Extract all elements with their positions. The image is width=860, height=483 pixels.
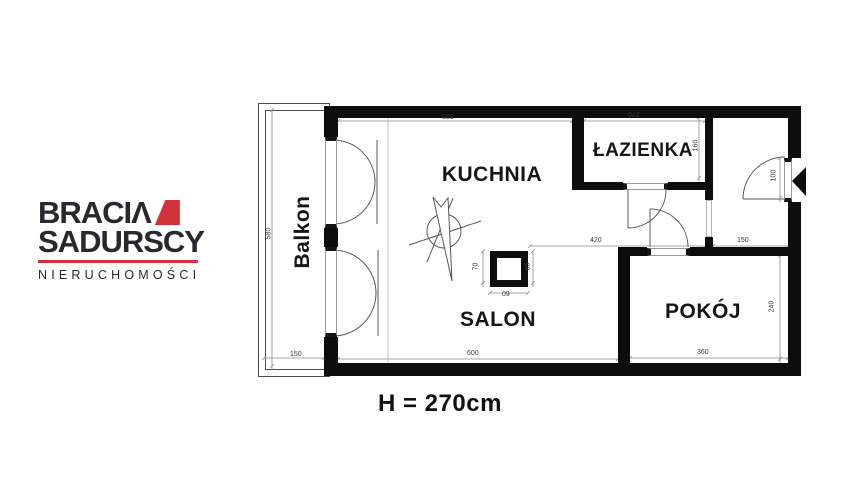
room-label-pokoj: POKÓJ [648,300,758,324]
room-label-kuchnia: KUCHNIA [432,163,552,187]
wall-room-top-right [690,247,800,256]
ceiling-height-note: H = 270cm [378,390,502,418]
wall-left-mullion [324,228,338,247]
room-label-balkon: Balkon [291,182,317,282]
balcony-door-1 [325,137,337,228]
dim-lazienka-depth: 160 [692,140,699,152]
wall-bathroom-left [572,106,584,190]
room-door [647,248,690,256]
wall-top [324,106,801,118]
wall-hall-right-upper [705,106,713,200]
wall-bottom [324,363,801,376]
dim-entry-opening: 100 [770,170,777,182]
room-label-salon: SALON [438,308,558,332]
dim-pokoj-depth: 240 [768,301,775,313]
dim-balkon-width: 150 [290,351,302,358]
hall-passage-opening [706,200,712,237]
ventilation-shaft [490,251,528,287]
dim-lazienka-width: 270 [628,110,640,117]
dim-kuchnia-width: 525 [442,112,454,119]
wall-right-lower [788,202,801,376]
wall-room-left [618,247,630,363]
room-label-lazienka: ŁAZIENKA [588,140,698,162]
dim-salon-width: 600 [467,350,479,357]
dim-shaft-right: 65 [524,263,531,271]
wall-left-bottom [324,337,338,376]
bathroom-door [623,183,668,190]
floorplan-page: BRACIΛ SADURSCY NIERUCHOMOŚCI [0,0,860,483]
wall-bathroom-bottom-left [572,182,623,190]
dim-pokoj-width: 360 [697,349,709,356]
entrance-door [784,158,792,202]
dim-balkon-length: 580 [265,228,272,240]
dim-shaft-left: 70 [472,263,479,271]
balcony-door-2 [325,247,337,337]
wall-right-upper [788,106,801,158]
north-arrow-icon [409,197,481,281]
dim-hall-length: 420 [590,237,602,244]
wall-left-top [324,106,338,137]
dim-shaft-bottom: 60 [502,289,510,296]
dim-entry-width: 150 [737,237,749,244]
entrance-arrow-icon [792,167,806,196]
